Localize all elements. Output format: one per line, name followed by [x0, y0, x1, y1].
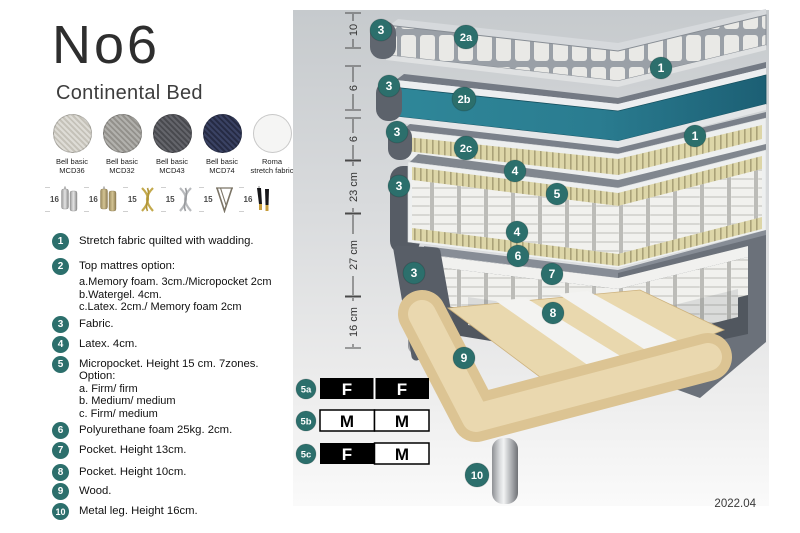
firmness-row-label: 5b	[300, 417, 311, 428]
svg-text:3: 3	[386, 79, 393, 93]
svg-text:9: 9	[461, 351, 468, 365]
svg-text:3: 3	[396, 179, 403, 193]
svg-text:3: 3	[394, 125, 401, 139]
firmness-cell: F	[342, 380, 352, 399]
svg-text:6: 6	[515, 249, 522, 263]
svg-text:3: 3	[411, 266, 418, 280]
badge-10: 10	[465, 463, 489, 487]
svg-text:8: 8	[550, 306, 557, 320]
svg-text:1: 1	[692, 129, 699, 143]
badge-2b: 2b	[452, 87, 476, 111]
svg-text:4: 4	[512, 164, 519, 178]
badge-4-bottom: 4	[506, 221, 528, 243]
badge-1a: 1	[650, 57, 672, 79]
version-label: 2022.04	[714, 498, 756, 510]
svg-text:2b: 2b	[458, 94, 471, 106]
measure-label: 23 cm	[348, 172, 360, 202]
badge-5: 5	[546, 183, 568, 205]
svg-text:1: 1	[658, 61, 665, 75]
firmness-row-label: 5c	[301, 450, 312, 461]
firmness-cell: M	[340, 412, 354, 431]
svg-text:5: 5	[554, 187, 561, 201]
firmness-cell: F	[342, 445, 352, 464]
badge-fabric-3: 3	[378, 75, 400, 97]
measure-label: 10	[348, 24, 360, 36]
badge-fabric-3: 3	[386, 121, 408, 143]
svg-text:2a: 2a	[460, 32, 473, 44]
badge-4-top: 4	[504, 160, 526, 182]
badge-fabric-3: 3	[370, 19, 392, 41]
badge-2a: 2a	[454, 25, 478, 49]
measure-label: 16 cm	[348, 307, 360, 337]
svg-text:3: 3	[378, 23, 385, 37]
svg-text:2c: 2c	[460, 143, 472, 155]
svg-text:4: 4	[514, 225, 521, 239]
svg-text:7: 7	[549, 267, 556, 281]
measure-label: 27 cm	[348, 240, 360, 270]
firmness-table: 5a F F 5b M M 5c F M	[296, 378, 429, 464]
badge-7: 7	[541, 263, 563, 285]
badge-8: 8	[542, 302, 564, 324]
firmness-cell: M	[395, 412, 409, 431]
badge-1b: 1	[684, 125, 706, 147]
firmness-cell: F	[397, 380, 407, 399]
exploded-bed-diagram: 10 6 6 23 cm 27 cm 16 cm	[0, 0, 800, 533]
firmness-cell: M	[395, 445, 409, 464]
badge-6: 6	[507, 245, 529, 267]
firmness-row-label: 5a	[301, 385, 312, 396]
badge-fabric-3: 3	[388, 175, 410, 197]
badge-2c: 2c	[454, 136, 478, 160]
measure-label: 6	[348, 136, 360, 142]
badge-fabric-3: 3	[403, 262, 425, 284]
badge-9: 9	[453, 347, 475, 369]
measure-label: 6	[348, 85, 360, 91]
svg-text:10: 10	[471, 470, 483, 482]
metal-leg-front	[492, 438, 518, 504]
